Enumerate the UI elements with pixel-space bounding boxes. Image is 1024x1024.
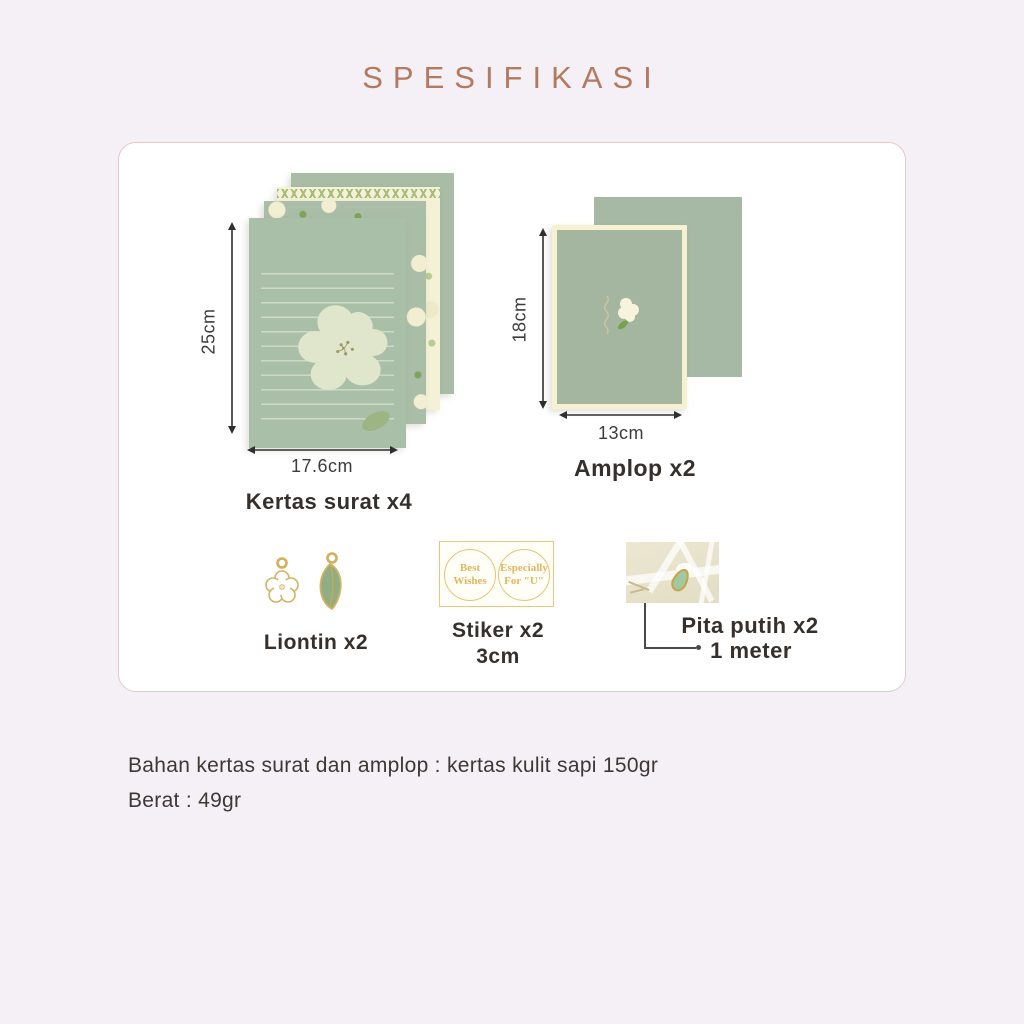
width-arrow-letter (246, 443, 399, 457)
sticker-label: Stiker x2 (418, 619, 578, 643)
weight-line: Berat : 49gr (128, 783, 658, 818)
leaf-border-pattern (277, 189, 440, 198)
sticker-size-label: 3cm (418, 645, 578, 669)
width-arrow-envelope (558, 408, 683, 422)
ribbon-photo (626, 542, 719, 603)
leaf-illustration (359, 408, 393, 434)
envelope-width-dimension: 13cm (561, 423, 681, 444)
letter-paper-front (249, 218, 406, 448)
leaf-charm (308, 551, 350, 619)
letter-height-dimension: 25cm (199, 300, 220, 364)
sticker-best-wishes: Best Wishes (444, 549, 496, 601)
spec-card: 25cm 17.6cm Kertas surat x4 (118, 142, 906, 692)
letter-width-dimension: 17.6cm (262, 456, 382, 477)
flower-illustration (288, 278, 401, 421)
callout-line-vertical (644, 603, 646, 648)
material-specs: Bahan kertas surat dan amplop : kertas k… (128, 748, 658, 818)
letter-paper-label: Kertas surat x4 (209, 489, 449, 515)
envelope-front (552, 225, 687, 409)
pendant-label: Liontin x2 (216, 631, 416, 655)
sticker-especially-for-u: Especially For "U" (498, 549, 550, 601)
dried-sprig (630, 588, 644, 593)
envelope-label: Amplop x2 (515, 455, 755, 482)
ribbon-label: Pita putih x2 (650, 613, 850, 639)
page-title: SPESIFIKASI (0, 60, 1024, 96)
ribbon-length-label: 1 meter (651, 638, 851, 664)
flower-charm (264, 555, 300, 609)
material-line: Bahan kertas surat dan amplop : kertas k… (128, 748, 658, 783)
sticker-sheet: Best Wishes Especially For "U" (439, 541, 554, 607)
envelope-flower-motif (597, 288, 643, 344)
envelope-height-dimension: 18cm (510, 288, 531, 352)
height-arrow-envelope (536, 227, 550, 410)
height-arrow-letter (225, 221, 239, 435)
